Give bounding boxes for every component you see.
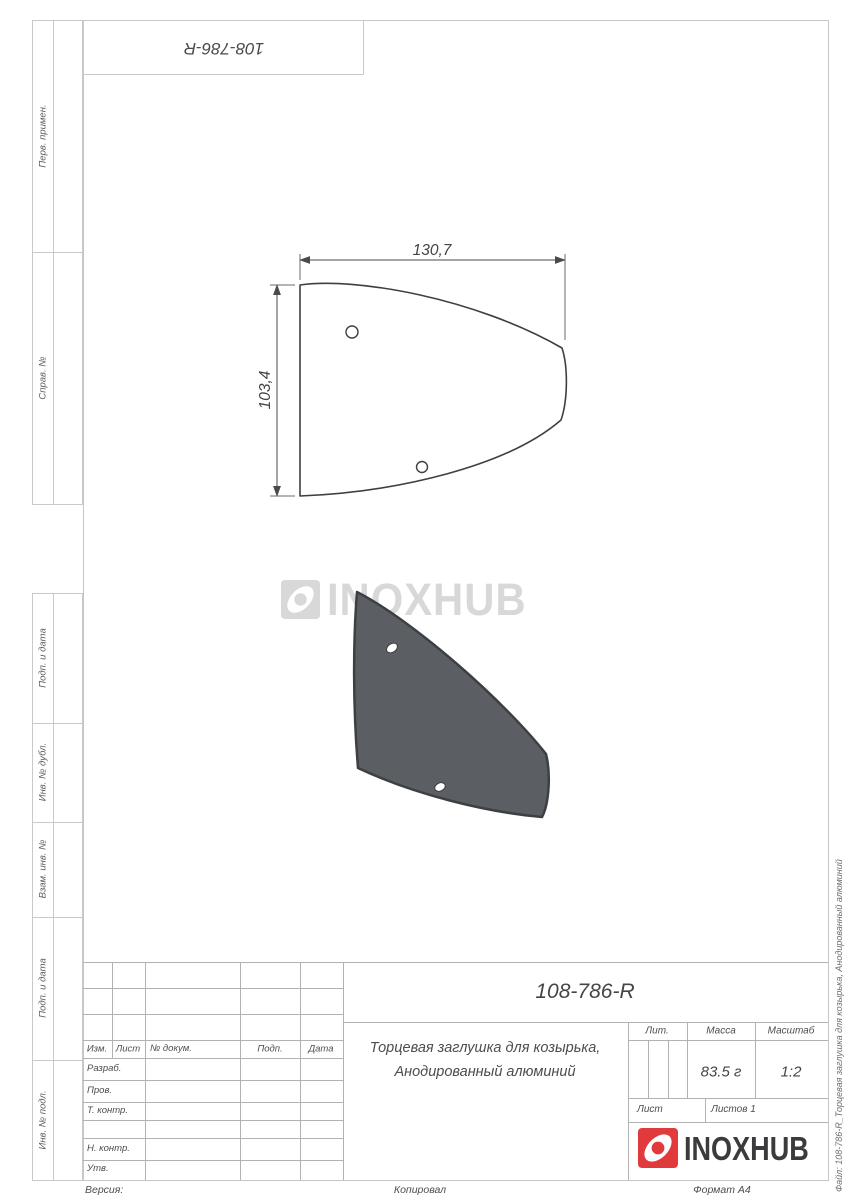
sidebar-label: Взам. инв. № bbox=[38, 840, 49, 899]
table-line bbox=[628, 1040, 828, 1041]
drawing-sheet: Перв. примен. Справ. № Подп. и дата Инв.… bbox=[0, 0, 848, 1200]
header-doc: № докум. bbox=[150, 1043, 192, 1054]
table-line bbox=[145, 962, 146, 1180]
iso-view bbox=[335, 572, 565, 834]
inoxhub-logo-icon bbox=[638, 1128, 678, 1168]
header-list: Лист bbox=[116, 1044, 140, 1055]
dim-height-label: 103,4 bbox=[257, 370, 274, 409]
hole-top bbox=[346, 326, 358, 338]
table-line bbox=[83, 1014, 343, 1015]
divider bbox=[53, 918, 54, 1060]
inoxhub-logo: INOXHUB bbox=[638, 1128, 836, 1168]
table-line bbox=[343, 962, 344, 1180]
table-line bbox=[755, 1022, 756, 1098]
corner-stamp-box: 108-786-R bbox=[83, 20, 364, 75]
table-line bbox=[628, 1098, 828, 1099]
table-line bbox=[83, 1138, 343, 1139]
divider bbox=[53, 594, 54, 723]
sidebar-label: Подп. и дата bbox=[38, 958, 49, 1017]
lit-label: Лит. bbox=[645, 1026, 668, 1037]
table-line bbox=[83, 1040, 343, 1041]
version-label: Версия: bbox=[85, 1184, 123, 1196]
mass-label: Масса bbox=[706, 1026, 736, 1037]
front-view: 130,7 103,4 bbox=[240, 228, 580, 520]
row-razrab: Разраб. bbox=[87, 1063, 121, 1074]
inoxhub-logo-text: INOXHUB bbox=[684, 1132, 809, 1165]
table-line bbox=[83, 962, 828, 963]
table-line bbox=[83, 1120, 343, 1121]
sidebar-label: Справ. № bbox=[38, 356, 49, 399]
table-line bbox=[240, 962, 241, 1180]
table-line bbox=[112, 962, 113, 1058]
sidebar-label: Подп. и дата bbox=[38, 628, 49, 687]
format-label: Формат А4 bbox=[693, 1184, 750, 1196]
hole-bottom bbox=[417, 462, 428, 473]
table-line bbox=[83, 1160, 343, 1161]
scale-value: 1:2 bbox=[781, 1064, 802, 1081]
table-line bbox=[687, 1022, 688, 1098]
sidebar-label: Инв. № дубл. bbox=[38, 743, 49, 801]
title-block-part-number: 108-786-R bbox=[535, 980, 634, 1004]
row-nkontr: Н. контр. bbox=[87, 1143, 130, 1154]
table-line bbox=[628, 1122, 828, 1123]
divider bbox=[53, 21, 54, 252]
copied-label: Копировал bbox=[394, 1184, 446, 1196]
row-utv: Утв. bbox=[87, 1163, 109, 1174]
table-line bbox=[628, 1022, 629, 1180]
mass-value: 83.5 г bbox=[701, 1064, 742, 1081]
part-name-line1: Торцевая заглушка для козырька, bbox=[370, 1040, 601, 1056]
table-line bbox=[83, 1102, 343, 1103]
part-outline bbox=[300, 283, 566, 496]
row-prov: Пров. bbox=[87, 1085, 112, 1096]
scale-label: Масштаб bbox=[768, 1026, 815, 1037]
header-sign: Подп. bbox=[257, 1044, 282, 1055]
sheets-label: Листов 1 bbox=[711, 1104, 756, 1115]
divider bbox=[53, 253, 54, 504]
table-line bbox=[300, 962, 301, 1180]
table-line bbox=[83, 988, 343, 989]
table-line bbox=[668, 1040, 669, 1098]
header-date: Дата bbox=[308, 1044, 333, 1055]
corner-stamp: 108-786-R bbox=[183, 38, 263, 58]
divider bbox=[53, 724, 54, 822]
sheet-label: Лист bbox=[637, 1104, 663, 1115]
part-name-line2: Анодированный алюминий bbox=[394, 1064, 575, 1080]
row-tkontr: Т. контр. bbox=[87, 1105, 128, 1116]
inoxhub-watermark-icon bbox=[281, 580, 320, 619]
sidebar-label: Инв. № подл. bbox=[38, 1091, 49, 1150]
header-izm: Изм. bbox=[87, 1044, 107, 1055]
sidebar-label: Перв. примен. bbox=[38, 104, 49, 167]
table-line bbox=[83, 1080, 343, 1081]
divider bbox=[53, 1061, 54, 1180]
table-line bbox=[83, 1058, 343, 1059]
table-line bbox=[648, 1040, 649, 1098]
divider bbox=[53, 823, 54, 917]
part-solid bbox=[354, 592, 549, 817]
dim-width-label: 130,7 bbox=[413, 242, 453, 259]
table-line bbox=[705, 1098, 706, 1122]
